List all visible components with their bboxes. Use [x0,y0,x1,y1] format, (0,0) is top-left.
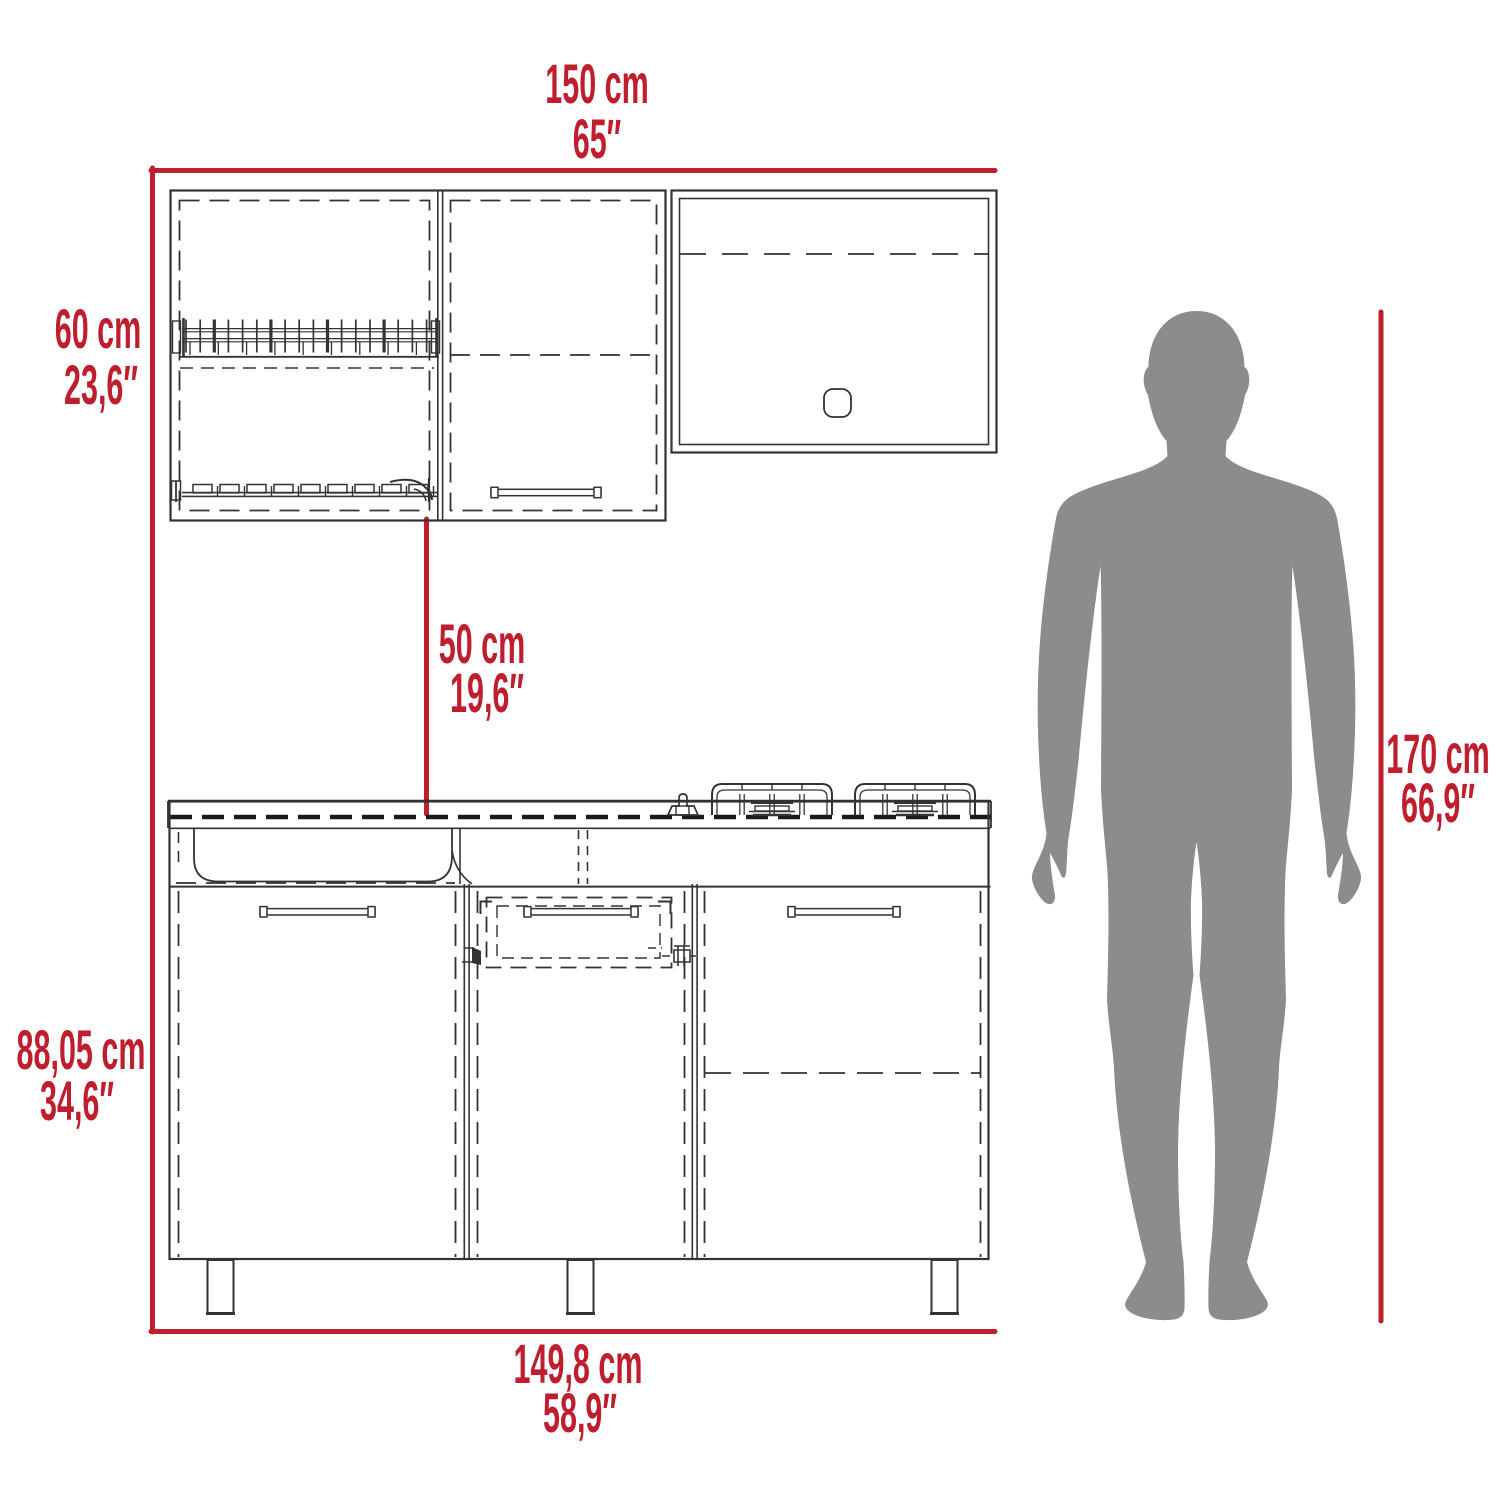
svg-text:58,9″: 58,9″ [543,1381,617,1444]
svg-text:60 cm: 60 cm [55,297,142,360]
svg-text:150 cm: 150 cm [545,52,648,115]
svg-text:19,6″: 19,6″ [450,661,524,724]
svg-text:23,6″: 23,6″ [64,353,138,416]
svg-text:65″: 65″ [573,107,622,170]
svg-text:66,9″: 66,9″ [1401,771,1475,834]
svg-text:34,6″: 34,6″ [40,1069,114,1132]
